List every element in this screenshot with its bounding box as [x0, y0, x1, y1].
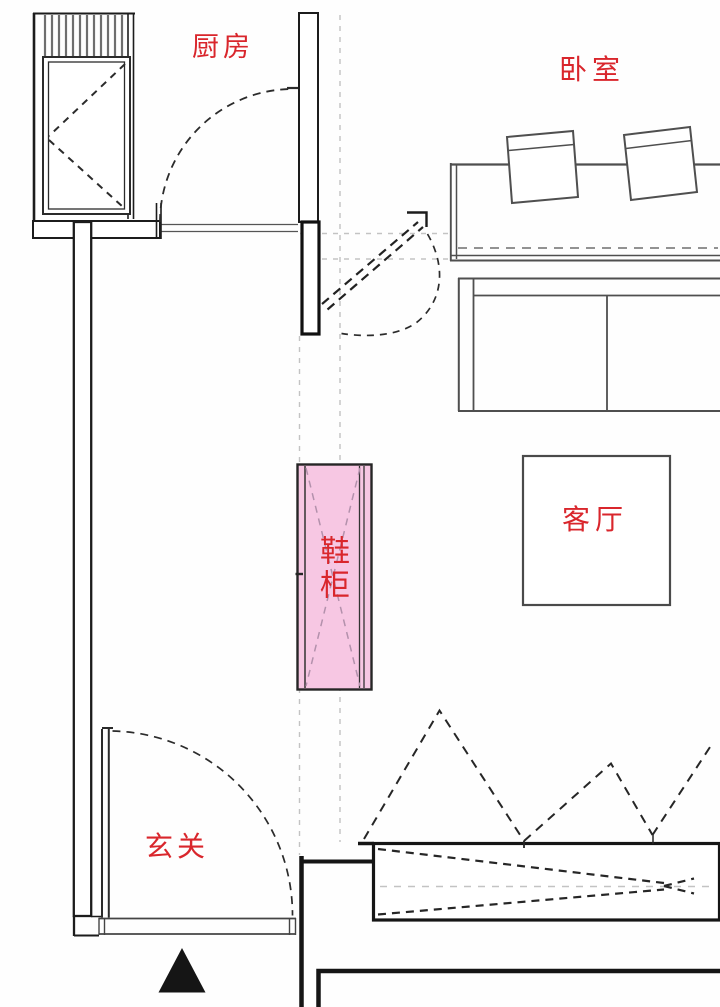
tv-cabinet — [374, 844, 720, 921]
kitchen-door-swing — [160, 88, 301, 222]
entry-threshold — [99, 918, 297, 935]
floor-plan: 厨房 卧室 客厅 玄关 鞋柜 — [0, 0, 720, 1007]
central-wall — [299, 13, 319, 334]
living-room-label: 客厅 — [562, 506, 628, 534]
wardrobe — [458, 278, 720, 411]
bedroom-door-swing — [322, 213, 440, 336]
kitchen-closet — [33, 13, 135, 222]
entrance-marker-icon — [159, 948, 206, 993]
kitchen-label: 厨房 — [192, 34, 254, 61]
fridge-symbol — [43, 57, 130, 214]
hatch-stripes-icon — [45, 15, 122, 56]
bedroom-label: 卧室 — [559, 56, 625, 84]
pillow-left — [507, 131, 578, 203]
folding-door-swings — [364, 711, 712, 849]
entry-door-swing — [102, 727, 293, 918]
pillow-right — [624, 127, 697, 200]
left-wall — [74, 222, 101, 936]
shoe-cabinet-label: 鞋柜 — [316, 535, 346, 603]
guide-lines — [300, 15, 453, 855]
entryway-label: 玄关 — [145, 833, 209, 861]
